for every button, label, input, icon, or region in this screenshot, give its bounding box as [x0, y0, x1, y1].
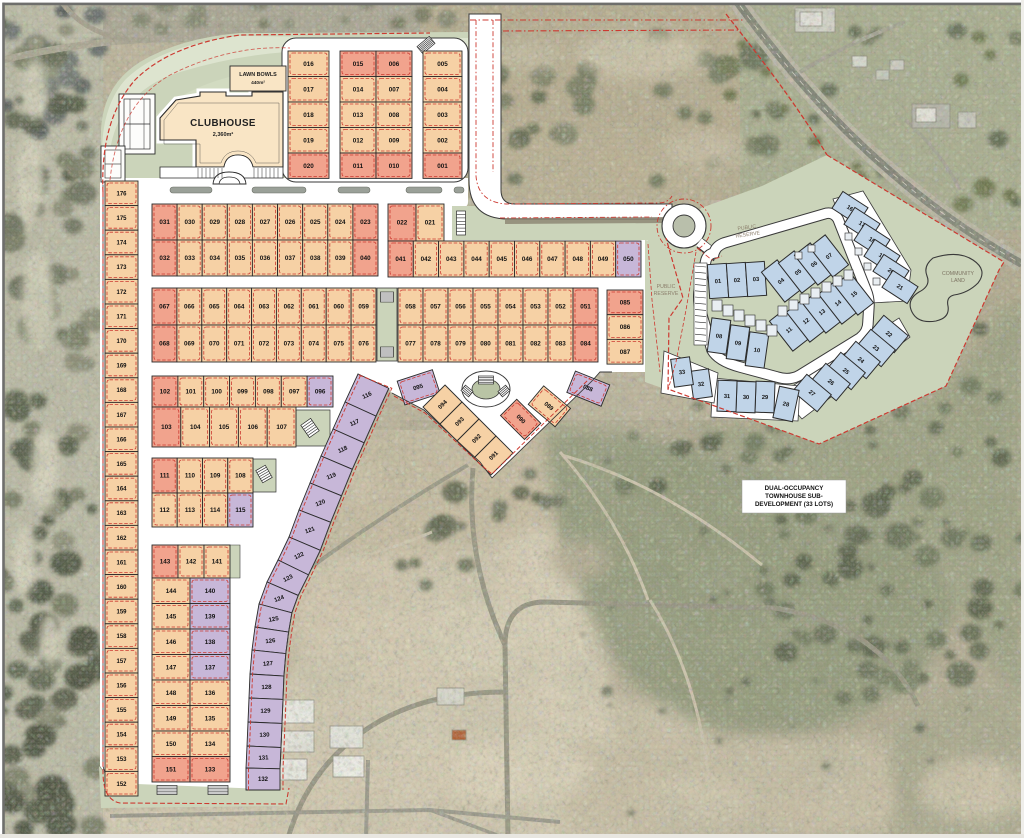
svg-text:017: 017: [303, 86, 314, 93]
svg-text:29: 29: [762, 395, 769, 401]
svg-text:31: 31: [724, 394, 731, 400]
svg-text:169: 169: [116, 364, 127, 370]
svg-text:138: 138: [205, 639, 216, 646]
svg-text:004: 004: [437, 86, 448, 93]
svg-text:03: 03: [753, 277, 761, 283]
svg-text:CLUBHOUSE: CLUBHOUSE: [190, 118, 256, 129]
svg-text:007: 007: [389, 86, 400, 93]
svg-text:045: 045: [497, 256, 508, 263]
svg-text:084: 084: [580, 341, 591, 348]
svg-text:132: 132: [258, 777, 269, 783]
svg-text:083: 083: [555, 341, 566, 348]
svg-text:173: 173: [116, 265, 127, 271]
svg-text:154: 154: [116, 733, 127, 739]
svg-text:052: 052: [555, 304, 566, 311]
svg-text:005: 005: [437, 61, 448, 68]
svg-text:044: 044: [471, 256, 482, 263]
svg-text:145: 145: [166, 613, 177, 620]
svg-text:061: 061: [309, 304, 320, 311]
svg-text:PUBLIC: PUBLIC: [657, 284, 676, 290]
svg-text:129: 129: [260, 709, 271, 715]
svg-text:030: 030: [184, 219, 195, 226]
svg-text:020: 020: [303, 163, 314, 170]
svg-text:170: 170: [116, 339, 127, 345]
svg-text:LAND: LAND: [951, 278, 965, 284]
svg-text:135: 135: [205, 715, 216, 722]
svg-text:172: 172: [116, 290, 127, 296]
svg-text:153: 153: [116, 757, 127, 763]
svg-text:143: 143: [160, 559, 171, 566]
svg-text:113: 113: [185, 507, 196, 514]
svg-text:149: 149: [166, 715, 177, 722]
svg-text:103: 103: [161, 424, 172, 431]
svg-text:175: 175: [116, 216, 127, 222]
svg-text:072: 072: [259, 341, 270, 348]
svg-text:071: 071: [234, 341, 245, 348]
svg-text:128: 128: [261, 685, 272, 691]
svg-text:082: 082: [530, 341, 541, 348]
svg-text:163: 163: [116, 511, 127, 517]
svg-text:028: 028: [235, 219, 246, 226]
svg-text:041: 041: [395, 256, 406, 263]
svg-text:066: 066: [184, 304, 195, 311]
svg-text:32: 32: [698, 382, 705, 389]
svg-text:074: 074: [309, 341, 320, 348]
svg-text:166: 166: [116, 437, 127, 443]
svg-text:DEVELOPMENT (33 LOTS): DEVELOPMENT (33 LOTS): [755, 501, 833, 508]
svg-text:108: 108: [235, 473, 246, 480]
svg-text:133: 133: [205, 766, 216, 773]
svg-text:038: 038: [310, 255, 321, 262]
svg-text:RESERVE: RESERVE: [654, 291, 679, 297]
svg-text:019: 019: [303, 137, 314, 144]
svg-text:006: 006: [389, 61, 400, 68]
svg-text:014: 014: [353, 86, 364, 93]
svg-text:008: 008: [389, 112, 400, 119]
svg-text:10: 10: [753, 348, 760, 355]
svg-text:139: 139: [205, 613, 216, 620]
svg-text:104: 104: [190, 424, 201, 431]
svg-text:099: 099: [237, 389, 248, 396]
svg-text:158: 158: [116, 634, 127, 640]
svg-text:013: 013: [353, 112, 364, 119]
svg-text:011: 011: [353, 163, 364, 170]
svg-text:036: 036: [260, 255, 271, 262]
svg-text:016: 016: [303, 61, 314, 68]
svg-text:022: 022: [397, 220, 408, 227]
svg-text:021: 021: [425, 220, 436, 227]
svg-text:087: 087: [620, 349, 631, 356]
svg-text:035: 035: [235, 255, 246, 262]
svg-text:027: 027: [260, 219, 271, 226]
svg-text:085: 085: [620, 300, 631, 307]
svg-text:040: 040: [360, 255, 371, 262]
svg-text:106: 106: [248, 424, 259, 431]
svg-text:102: 102: [160, 389, 171, 396]
svg-text:068: 068: [159, 341, 170, 348]
svg-text:01: 01: [715, 279, 723, 285]
svg-text:042: 042: [421, 256, 432, 263]
svg-text:162: 162: [116, 536, 127, 542]
svg-text:055: 055: [480, 304, 491, 311]
svg-text:174: 174: [116, 241, 127, 247]
svg-text:LAWN BOWLS: LAWN BOWLS: [239, 72, 277, 78]
svg-text:069: 069: [184, 341, 195, 348]
svg-text:111: 111: [160, 473, 170, 480]
svg-text:063: 063: [259, 304, 270, 311]
svg-text:077: 077: [405, 341, 416, 348]
svg-text:039: 039: [335, 255, 346, 262]
svg-text:165: 165: [116, 462, 127, 468]
svg-text:107: 107: [276, 424, 287, 431]
svg-text:012: 012: [353, 137, 364, 144]
svg-text:034: 034: [210, 255, 221, 262]
svg-text:144: 144: [166, 588, 177, 595]
svg-text:075: 075: [333, 341, 344, 348]
svg-text:043: 043: [446, 256, 457, 263]
svg-text:047: 047: [547, 256, 558, 263]
svg-text:151: 151: [166, 766, 177, 773]
svg-text:018: 018: [303, 112, 314, 119]
svg-text:024: 024: [335, 219, 346, 226]
svg-text:056: 056: [455, 304, 466, 311]
svg-text:067: 067: [159, 304, 170, 311]
svg-text:053: 053: [530, 304, 541, 311]
svg-text:002: 002: [437, 137, 448, 144]
svg-text:015: 015: [353, 61, 364, 68]
svg-text:003: 003: [437, 112, 448, 119]
svg-text:086: 086: [620, 324, 631, 331]
svg-text:026: 026: [285, 219, 296, 226]
svg-text:060: 060: [333, 304, 344, 311]
svg-text:009: 009: [389, 137, 400, 144]
svg-text:109: 109: [210, 473, 221, 480]
svg-text:073: 073: [284, 341, 295, 348]
svg-text:DUAL-OCCUPANCY: DUAL-OCCUPANCY: [765, 485, 825, 492]
svg-text:130: 130: [259, 733, 270, 739]
svg-text:148: 148: [166, 690, 177, 697]
svg-text:155: 155: [116, 708, 127, 714]
svg-text:100: 100: [211, 389, 222, 396]
svg-text:141: 141: [212, 559, 223, 566]
svg-text:037: 037: [285, 255, 296, 262]
svg-text:COMMUNITY: COMMUNITY: [942, 271, 975, 277]
svg-text:147: 147: [166, 664, 177, 671]
svg-text:164: 164: [116, 487, 127, 493]
svg-text:046: 046: [522, 256, 533, 263]
svg-text:159: 159: [116, 610, 127, 616]
svg-text:029: 029: [210, 219, 221, 226]
svg-text:076: 076: [358, 341, 369, 348]
svg-text:157: 157: [116, 659, 127, 665]
svg-text:065: 065: [209, 304, 220, 311]
svg-text:137: 137: [205, 664, 216, 671]
svg-text:114: 114: [210, 507, 221, 514]
svg-text:050: 050: [623, 256, 634, 263]
svg-text:054: 054: [505, 304, 516, 311]
svg-text:057: 057: [430, 304, 441, 311]
svg-text:025: 025: [310, 219, 321, 226]
svg-text:140: 140: [205, 588, 216, 595]
svg-text:176: 176: [116, 191, 127, 197]
svg-text:097: 097: [289, 389, 300, 396]
svg-text:078: 078: [430, 341, 441, 348]
svg-text:033: 033: [184, 255, 195, 262]
svg-text:146: 146: [166, 639, 177, 646]
svg-text:112: 112: [160, 507, 171, 514]
svg-text:168: 168: [116, 388, 127, 394]
svg-text:105: 105: [219, 424, 230, 431]
svg-text:031: 031: [159, 219, 170, 226]
svg-text:080: 080: [480, 341, 491, 348]
svg-text:023: 023: [360, 219, 371, 226]
svg-text:062: 062: [284, 304, 295, 311]
svg-text:167: 167: [116, 413, 127, 419]
svg-text:081: 081: [505, 341, 516, 348]
svg-text:150: 150: [166, 741, 177, 748]
svg-text:2,360m²: 2,360m²: [213, 131, 234, 138]
svg-text:134: 134: [205, 741, 216, 748]
svg-text:02: 02: [734, 278, 741, 284]
svg-text:127: 127: [263, 661, 274, 668]
svg-text:440m²: 440m²: [251, 80, 265, 86]
svg-text:TOWNHOUSE SUB-: TOWNHOUSE SUB-: [765, 493, 823, 500]
svg-text:142: 142: [186, 559, 197, 566]
svg-text:001: 001: [437, 163, 448, 170]
svg-text:064: 064: [234, 304, 245, 311]
svg-text:161: 161: [116, 560, 127, 566]
svg-text:115: 115: [235, 507, 246, 514]
svg-text:101: 101: [186, 389, 197, 396]
svg-text:110: 110: [185, 473, 196, 480]
svg-text:131: 131: [258, 755, 269, 762]
svg-text:010: 010: [389, 163, 400, 170]
svg-text:096: 096: [315, 389, 326, 396]
svg-text:160: 160: [116, 585, 127, 591]
svg-text:051: 051: [580, 304, 591, 311]
svg-text:171: 171: [116, 314, 127, 320]
svg-text:048: 048: [573, 256, 584, 263]
svg-text:156: 156: [116, 683, 127, 689]
svg-text:049: 049: [598, 256, 609, 263]
svg-text:30: 30: [743, 395, 750, 401]
svg-text:032: 032: [159, 255, 170, 262]
svg-text:079: 079: [455, 341, 466, 348]
svg-text:098: 098: [263, 389, 274, 396]
svg-text:136: 136: [205, 690, 216, 697]
svg-text:070: 070: [209, 341, 220, 348]
svg-text:059: 059: [358, 304, 369, 311]
svg-text:058: 058: [405, 304, 416, 311]
svg-text:152: 152: [116, 782, 127, 788]
